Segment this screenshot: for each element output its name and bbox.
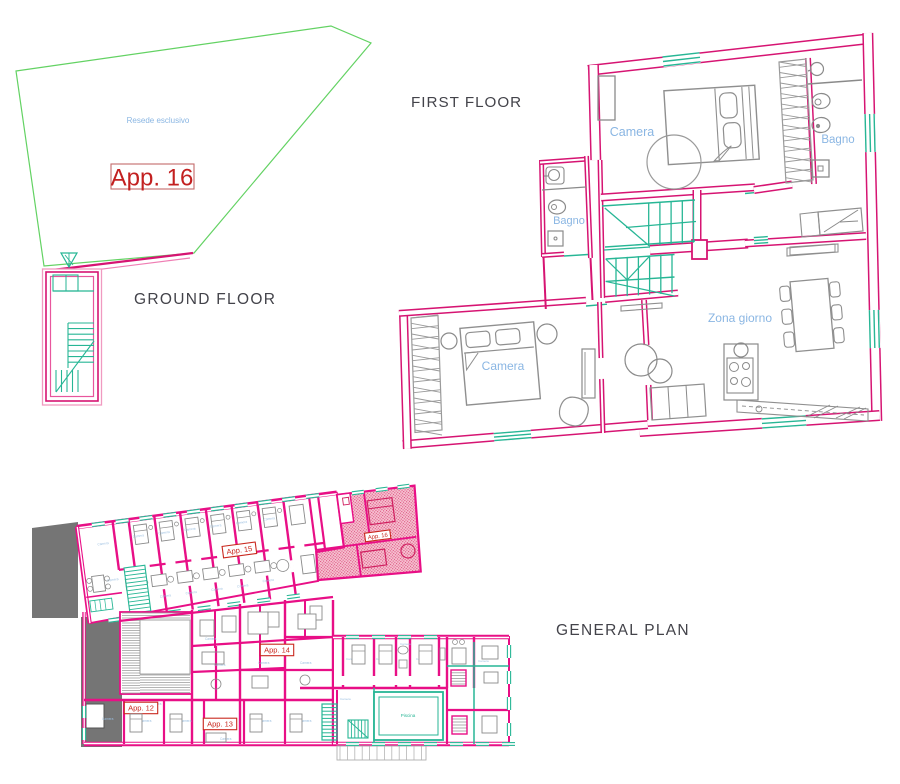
svg-text:Camera: Camera	[102, 717, 114, 721]
svg-text:Camera: Camera	[482, 359, 525, 373]
svg-text:FIRST FLOOR: FIRST FLOOR	[411, 94, 522, 111]
svg-text:Camera: Camera	[478, 659, 489, 663]
svg-text:Zona giorno: Zona giorno	[708, 311, 772, 325]
svg-text:App. 12: App. 12	[128, 704, 154, 713]
svg-text:Bagno: Bagno	[821, 134, 854, 146]
svg-text:Camera: Camera	[300, 661, 312, 665]
svg-text:Resede esclusivo: Resede esclusivo	[127, 116, 190, 125]
svg-text:App. 16: App. 16	[111, 165, 194, 192]
svg-text:App. 13: App. 13	[207, 720, 233, 729]
svg-text:App. 14: App. 14	[264, 646, 290, 655]
svg-text:GENERAL PLAN: GENERAL PLAN	[556, 622, 690, 639]
svg-text:GROUND FLOOR: GROUND FLOOR	[134, 291, 276, 308]
svg-text:Camera: Camera	[610, 125, 655, 139]
svg-text:Camera: Camera	[400, 642, 411, 646]
svg-text:Bagno: Bagno	[553, 215, 585, 227]
svg-text:Camera: Camera	[258, 661, 270, 665]
svg-text:Piscina: Piscina	[401, 713, 416, 718]
svg-text:Camera: Camera	[340, 697, 351, 701]
svg-text:Camera: Camera	[205, 637, 217, 641]
